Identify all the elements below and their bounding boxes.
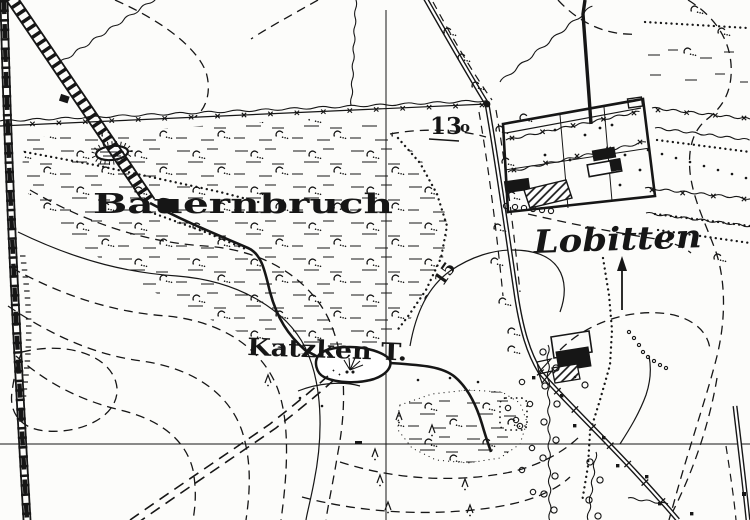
railway-left-edge — [1, 0, 31, 520]
marsh-strip-northeast — [648, 50, 748, 82]
label-elevation-130-sub: o — [460, 118, 470, 136]
marsh-bauernbruch — [22, 116, 448, 358]
farm-lane — [583, 0, 591, 124]
label-lobitten: Lobitten — [532, 217, 702, 261]
topographic-map: Bauernbruch Lobitten Katzken T. 13 o 15 — [0, 0, 750, 520]
marsh-meadow-south — [398, 390, 527, 463]
map-canvas: Bauernbruch Lobitten Katzken T. 13 o 15 — [0, 0, 750, 520]
label-elevation-130-main: 13 — [430, 113, 462, 140]
survey-mark — [355, 441, 362, 445]
small-structure — [59, 94, 70, 103]
road-right-edge — [726, 406, 748, 520]
farmstead-south — [537, 330, 668, 388]
label-katzken: Katzken T. — [247, 332, 408, 367]
road-dashed-southwest — [130, 370, 340, 520]
label-bauernbruch: Bauernbruch — [93, 189, 394, 220]
direction-arrow — [617, 256, 627, 310]
